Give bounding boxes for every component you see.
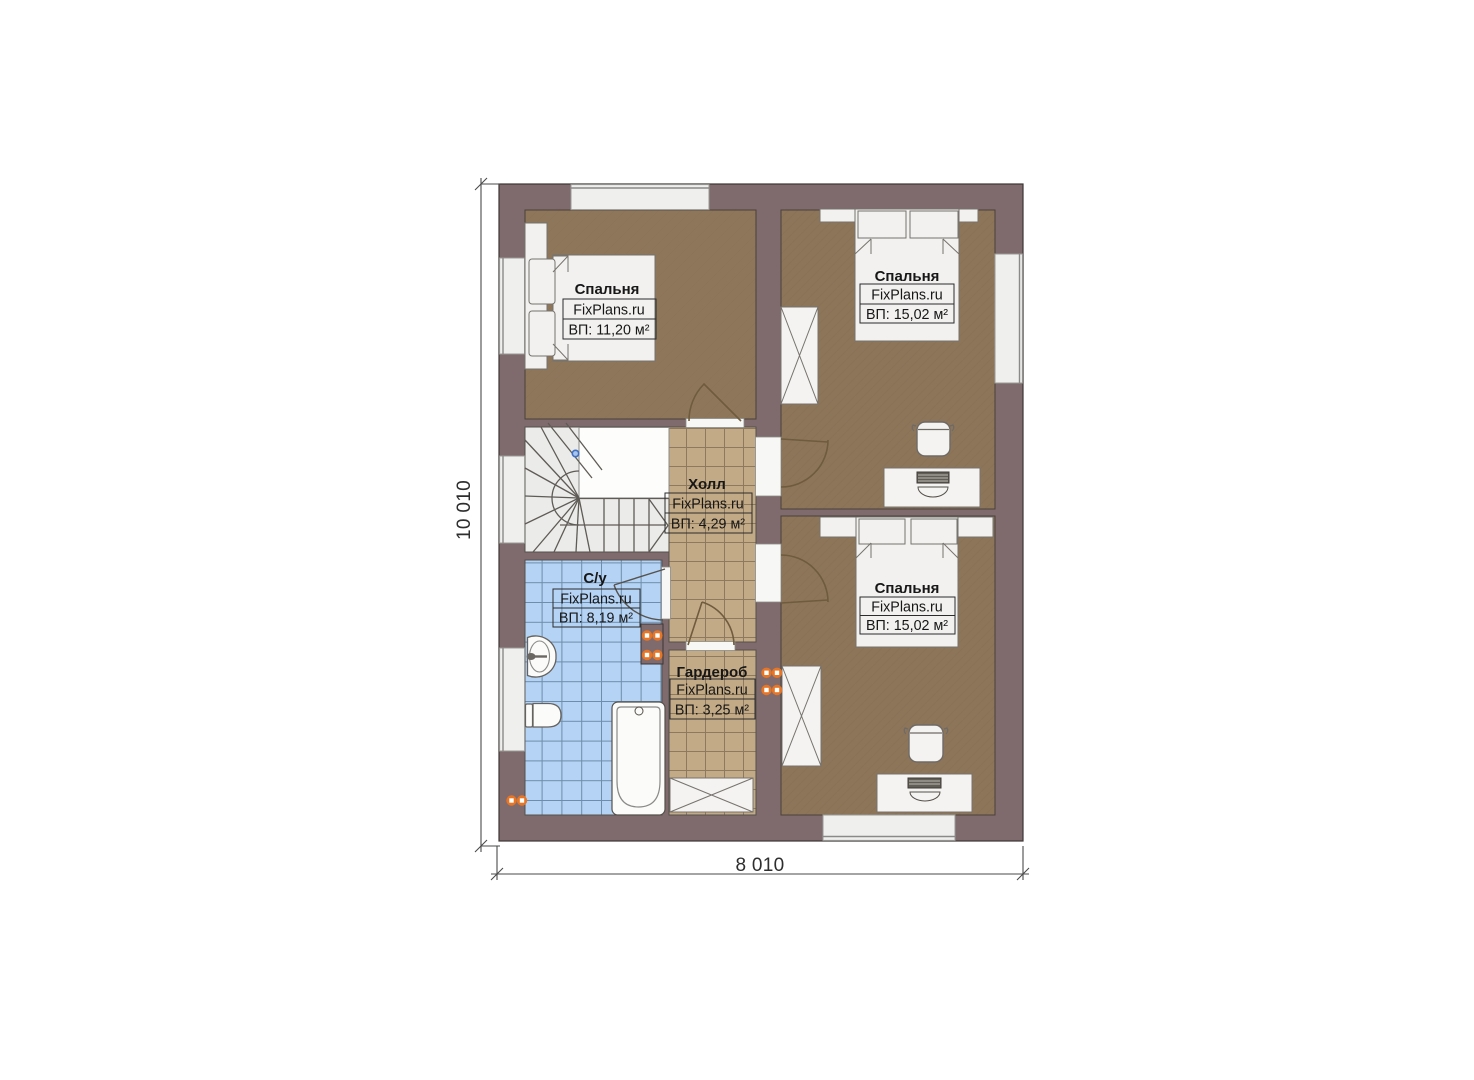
svg-text:С/у: С/у: [583, 570, 607, 587]
svg-text:FixPlans.ru: FixPlans.ru: [573, 303, 645, 319]
svg-text:ВП: 4,29 м²: ВП: 4,29 м²: [671, 517, 745, 533]
svg-text:ВП: 3,25 м²: ВП: 3,25 м²: [675, 703, 749, 719]
svg-text:Спальня: Спальня: [875, 580, 940, 597]
svg-text:8 010: 8 010: [735, 855, 784, 876]
svg-text:ВП: 8,19 м²: ВП: 8,19 м²: [559, 611, 633, 627]
svg-text:10 010: 10 010: [454, 480, 475, 540]
svg-text:FixPlans.ru: FixPlans.ru: [676, 683, 748, 699]
svg-text:FixPlans.ru: FixPlans.ru: [672, 497, 744, 513]
svg-text:ВП: 15,02 м²: ВП: 15,02 м²: [866, 618, 948, 634]
svg-text:FixPlans.ru: FixPlans.ru: [871, 600, 943, 616]
svg-text:Холл: Холл: [688, 476, 726, 493]
svg-text:Гардероб: Гардероб: [677, 664, 748, 681]
svg-text:ВП: 15,02 м²: ВП: 15,02 м²: [866, 307, 948, 323]
svg-text:FixPlans.ru: FixPlans.ru: [871, 288, 943, 304]
svg-text:ВП: 11,20 м²: ВП: 11,20 м²: [568, 323, 649, 339]
svg-text:Спальня: Спальня: [575, 281, 640, 298]
svg-text:FixPlans.ru: FixPlans.ru: [560, 592, 632, 608]
svg-text:Спальня: Спальня: [875, 268, 940, 285]
